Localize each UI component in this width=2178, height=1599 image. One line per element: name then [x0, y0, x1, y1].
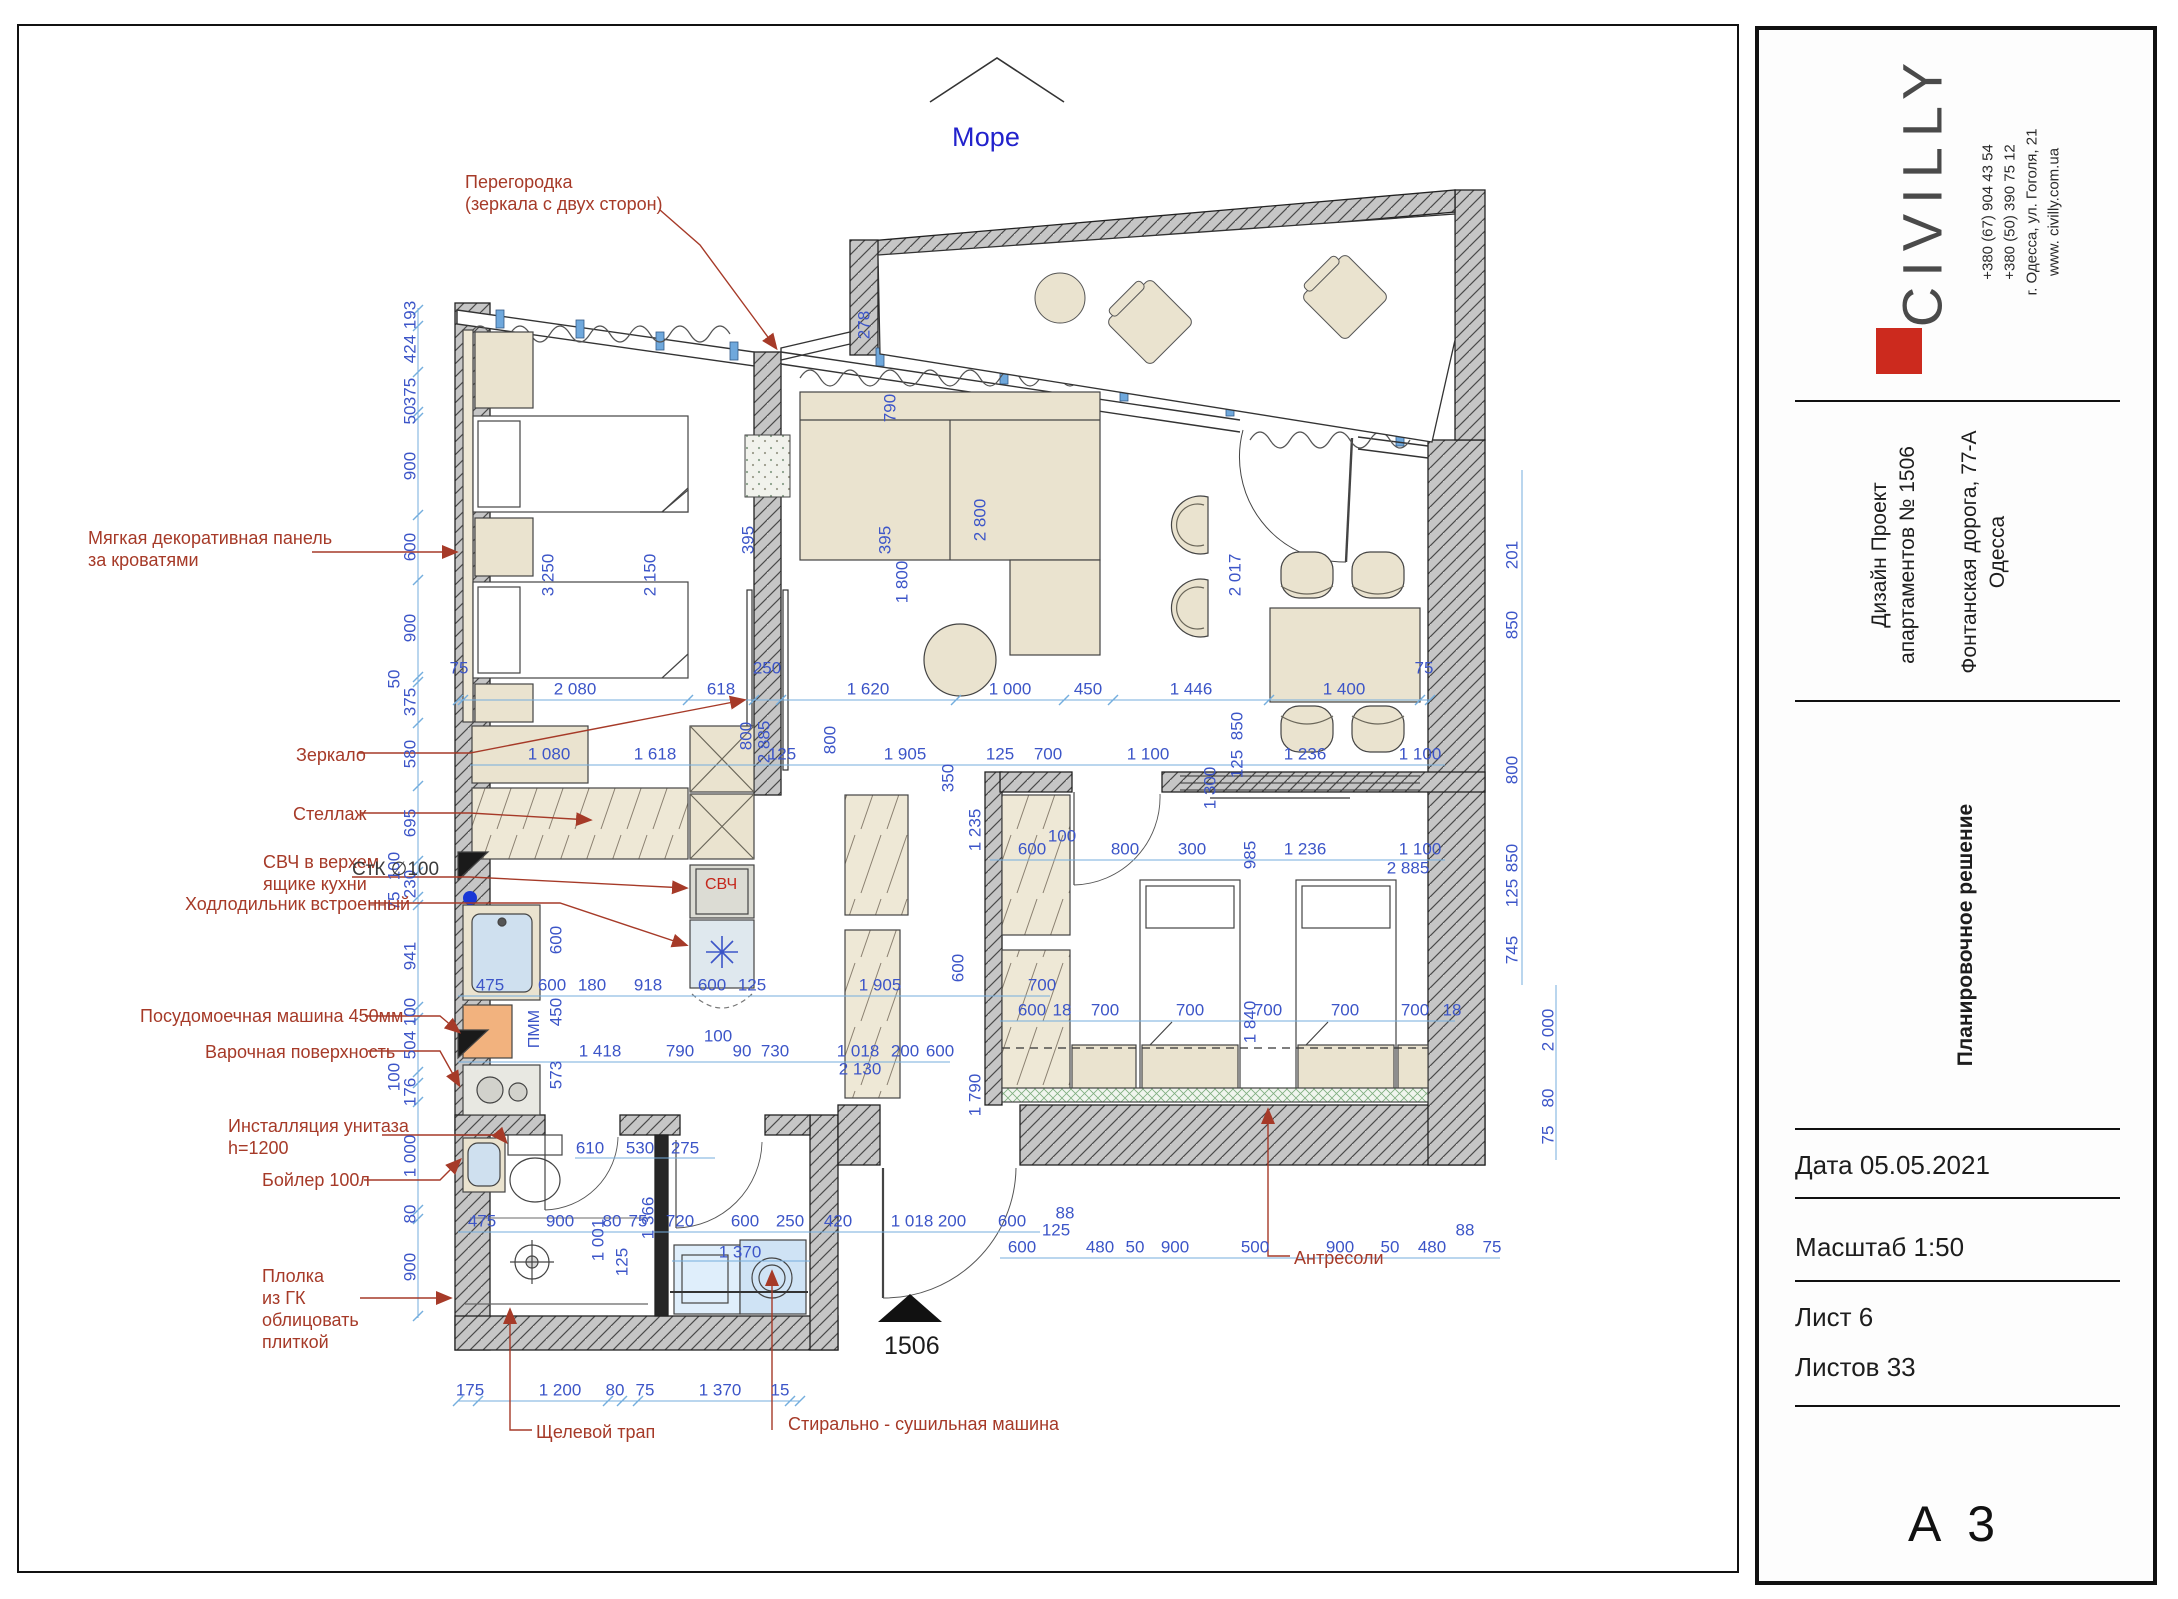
dimension-label: 918	[634, 977, 662, 994]
dimension-label: 2 885	[1387, 860, 1430, 877]
hall-closet-1	[845, 795, 908, 915]
dimension-label: 900	[546, 1213, 574, 1230]
annotation-shelving: Стеллаж	[293, 804, 367, 826]
mirror-strip-right	[783, 590, 788, 770]
sheet-count-row: Листов 33	[1795, 1352, 2125, 1383]
dimension-label: 475	[476, 977, 504, 994]
dimension-label: 18	[1443, 1002, 1462, 1019]
dimension-label: 395	[740, 526, 757, 554]
dimension-label: 1 618	[634, 746, 677, 763]
dimension-label: 125	[768, 746, 796, 763]
dimension-label: 200	[938, 1213, 966, 1230]
balcony-door-leaf	[1346, 438, 1352, 562]
project-title-2: апартаментов № 1506	[1896, 446, 1920, 664]
dimension-label: 80	[402, 1205, 419, 1224]
dimension-label: 1 100	[1127, 746, 1170, 763]
structural-column	[745, 435, 790, 497]
dimension-label: 790	[666, 1043, 694, 1060]
dimension-label: 2 800	[972, 499, 989, 542]
annotation-partition: Перегородка(зеркала с двух сторон)	[465, 172, 663, 216]
dimension-label: 125	[986, 746, 1014, 763]
dimension-label: 1 418	[579, 1043, 622, 1060]
dimension-label: 1 236	[1284, 841, 1327, 858]
tb-divider-6	[1795, 1405, 2120, 1407]
dimension-label: 800	[1111, 841, 1139, 858]
toilet	[508, 1135, 562, 1202]
dimension-label: 800	[822, 726, 839, 754]
dimension-label: 504	[402, 1031, 419, 1059]
tb-divider-4	[1795, 1197, 2120, 1199]
dimension-label: 618	[707, 681, 735, 698]
dimension-label: 3 250	[540, 554, 557, 597]
sheet-number-value: 6	[1859, 1302, 1873, 1332]
wardrobe-lower	[1002, 950, 1070, 1098]
dimension-label: 50	[402, 406, 419, 425]
dimension-label: 985	[1242, 841, 1259, 869]
dimension-label: 1 790	[967, 1074, 984, 1117]
dimension-label: 1 018	[837, 1043, 880, 1060]
dimension-label: 480	[1418, 1239, 1446, 1256]
annotation-antresoli: Антресоли	[1294, 1248, 1384, 1270]
dimension-label: 375	[402, 378, 419, 406]
dimension-label: 90	[733, 1043, 752, 1060]
dimension-label: 180	[578, 977, 606, 994]
wall-right	[1428, 440, 1485, 1165]
dimension-label: 700	[1401, 1002, 1429, 1019]
dimension-label: 600	[926, 1043, 954, 1060]
dimension-label: 900	[402, 1253, 419, 1281]
dimension-label: 250	[753, 660, 781, 677]
dimension-label: 1 200	[539, 1382, 582, 1399]
wall-bedroom2-left	[985, 772, 1002, 1105]
drawing-sheet: { "compass": {"label": "Море"}, "entry_m…	[0, 0, 2178, 1599]
annotation-slot-drain: Щелевой трап	[536, 1422, 655, 1444]
dimension-label: 850	[1504, 611, 1521, 639]
dimension-label: 1 100	[1399, 746, 1442, 763]
dimension-label: 600	[698, 977, 726, 994]
dimension-label: 125	[1504, 879, 1521, 907]
dimension-label: 18	[1053, 1002, 1072, 1019]
dimension-label: 424	[402, 335, 419, 363]
dimension-label: 100	[402, 998, 419, 1026]
annotation-cooktop: Варочная поверхность	[205, 1042, 395, 1064]
dimension-label: 600	[538, 977, 566, 994]
dimension-label: 600	[998, 1213, 1026, 1230]
dimension-label: 300	[1178, 841, 1206, 858]
dimension-label: 1 905	[884, 746, 927, 763]
dimension-label: 730	[761, 1043, 789, 1060]
dimension-label: 600	[1018, 841, 1046, 858]
dimension-label: 1 000	[989, 681, 1032, 698]
shelving-unit	[472, 788, 688, 859]
dimension-label: 600	[548, 926, 565, 954]
dimension-label: 2 000	[1540, 1009, 1557, 1052]
dimension-label: 75	[450, 660, 469, 677]
plan-text-svch: СВЧ	[705, 876, 737, 894]
nightstand-2	[475, 518, 533, 576]
annotation-wc-frame: Инсталляция унитазаh=1200	[228, 1116, 409, 1160]
sheet-count-label: Листов	[1795, 1352, 1879, 1382]
dimension-label: 450	[1074, 681, 1102, 698]
entry	[878, 1168, 1016, 1322]
dimension-label: 530	[626, 1140, 654, 1157]
dimension-label: 75	[636, 1382, 655, 1399]
plan-text-stk: СтК ∅100	[352, 858, 439, 881]
dimension-label: 100	[704, 1028, 732, 1045]
dimension-label: 125	[738, 977, 766, 994]
dimension-label: 200	[891, 1043, 919, 1060]
dimension-label: 1 800	[894, 561, 911, 604]
dimension-label: 475	[468, 1213, 496, 1230]
wall-balcony-right	[1455, 190, 1485, 440]
dimension-label: 395	[877, 526, 894, 554]
dimension-label: 850	[1229, 712, 1246, 740]
sheet-count-value: 33	[1887, 1352, 1916, 1382]
dimension-label: 80	[603, 1213, 622, 1230]
paper-format: А 3	[1908, 1495, 2001, 1553]
wall-bottom-right	[1020, 1105, 1485, 1165]
sea-direction-chevron	[930, 58, 1064, 102]
plan-text-more: Море	[952, 122, 1020, 153]
threshold-strip	[1002, 1088, 1428, 1102]
sofa-chaise	[1010, 560, 1100, 655]
dimension-label: 900	[402, 452, 419, 480]
sofa	[800, 392, 1100, 655]
dimension-label: 350	[940, 764, 957, 792]
dimension-label: 375	[402, 688, 419, 716]
dimension-label: 580	[402, 740, 419, 768]
wall-bottom-bath	[455, 1316, 838, 1350]
dimension-label: 1 100	[1399, 841, 1442, 858]
scale-label: Масштаб	[1795, 1232, 1906, 1262]
dimension-label: 600	[731, 1213, 759, 1230]
dimension-label: 800	[1504, 756, 1521, 784]
dimension-label: 790	[882, 394, 899, 422]
dimension-label: 700	[1028, 977, 1056, 994]
nightstand-1	[475, 332, 533, 408]
dimension-label: 250	[776, 1213, 804, 1230]
tb-divider-3	[1795, 1128, 2120, 1130]
nightstand-3	[475, 684, 533, 722]
dimension-label: 80	[1540, 1089, 1557, 1108]
dimension-label: 900	[1161, 1239, 1189, 1256]
dimension-label: 941	[402, 942, 419, 970]
dimension-label: 15	[771, 1382, 790, 1399]
dimension-label: 75	[1540, 1126, 1557, 1145]
bed-2	[473, 582, 688, 678]
dimension-label: 695	[402, 809, 419, 837]
dimension-label: 480	[1086, 1239, 1114, 1256]
dimension-label: 88	[1056, 1205, 1075, 1222]
dimension-label: 278	[856, 311, 873, 339]
dimension-label: 700	[1331, 1002, 1359, 1019]
dimension-label: 600	[402, 533, 419, 561]
plan-text-pmm: ПММ	[526, 1010, 544, 1048]
tb-divider-2	[1795, 700, 2120, 702]
dimension-label: 201	[1504, 541, 1521, 569]
dimension-label: 700	[1176, 1002, 1204, 1019]
dimension-label: 850	[1504, 844, 1521, 872]
scale-value: 1:50	[1913, 1232, 1964, 1262]
company-website: www. civilly.com.ua	[2046, 148, 2063, 276]
sheet-number-row: Лист 6	[1795, 1302, 2125, 1333]
dimension-label: 80	[606, 1382, 625, 1399]
company-address: г. Одесса, ул. Гоголя, 21	[2024, 129, 2041, 296]
plan-text-entry: 1506	[884, 1332, 940, 1361]
dimension-label: 75	[629, 1213, 648, 1230]
annotation-boiler: Бойлер 100л	[262, 1170, 370, 1192]
dimension-label: 800	[738, 722, 755, 750]
dimension-label: 600	[950, 954, 967, 982]
date-label: Дата	[1795, 1150, 1853, 1180]
dimension-label: 1 235	[967, 809, 984, 852]
annotation-fridge: Ходлодильник встроенный	[185, 894, 410, 916]
dimension-label: 275	[671, 1140, 699, 1157]
dimension-label: 193	[402, 301, 419, 329]
date-value: 05.05.2021	[1860, 1150, 1990, 1180]
dimension-label: 2 017	[1227, 554, 1244, 597]
project-title-1: Дизайн Проект	[1868, 482, 1892, 628]
dimension-label: 573	[548, 1061, 565, 1089]
annotation-soft-panel: Мягкая декоративная панельза кроватями	[88, 528, 332, 572]
dimension-label: 1 400	[1323, 681, 1366, 698]
dimension-label: 600	[1018, 1002, 1046, 1019]
bed-3	[1140, 880, 1240, 1098]
phone-2: +380 (50) 390 75 12	[2002, 144, 2019, 280]
bed-4	[1296, 880, 1396, 1098]
dimension-label: 900	[402, 614, 419, 642]
dimension-label: 176	[402, 1078, 419, 1106]
dimension-label: 1 446	[1170, 681, 1213, 698]
company-logo: CIVILLY	[1890, 53, 1955, 327]
dimension-label: 610	[576, 1140, 604, 1157]
dimension-label: 745	[1504, 936, 1521, 964]
dimension-label: 700	[1034, 746, 1062, 763]
dimension-label: 720	[666, 1213, 694, 1230]
dimension-label: 100	[1048, 828, 1076, 845]
dimension-label: 700	[1091, 1002, 1119, 1019]
wardrobe-upper	[1002, 795, 1070, 935]
dimension-label: 75	[1483, 1239, 1502, 1256]
dimension-label: 50	[386, 670, 403, 689]
dimension-label: 125	[1042, 1222, 1070, 1239]
dimension-label: 88	[1456, 1222, 1475, 1239]
dimension-label: 420	[824, 1213, 852, 1230]
phone-1: +380 (67) 904 43 54	[1980, 144, 1997, 280]
dimension-label: 1 840	[1242, 1001, 1259, 1044]
dimension-label: 450	[548, 998, 565, 1026]
project-address-2: Одесса	[1986, 516, 2010, 589]
tb-divider-1	[1795, 400, 2120, 402]
dimension-label: 125	[614, 1248, 631, 1276]
project-address-1: Фонтанская дорога, 77-А	[1958, 430, 1982, 673]
date-row: Дата 05.05.2021	[1795, 1150, 2125, 1181]
dimension-label: 175	[456, 1382, 484, 1399]
annotation-gk-shelf: Плолкаиз ГКоблицоватьплиткой	[262, 1266, 359, 1354]
dimension-label: 600	[1008, 1239, 1036, 1256]
dimension-label: 50	[1126, 1239, 1145, 1256]
dimension-label: 500	[1241, 1239, 1269, 1256]
dimension-label: 1 620	[847, 681, 890, 698]
annotation-dishwasher: Посудомоечная машина 450мм	[140, 1006, 403, 1028]
balcony-door-swing	[1239, 430, 1346, 562]
dimension-label: 1 080	[528, 746, 571, 763]
sheet-number-label: Лист	[1795, 1302, 1852, 1332]
dimension-label: 1 018	[891, 1213, 934, 1230]
annotation-washer-dryer: Стирально - сушильная машина	[788, 1414, 1059, 1436]
dimension-label: 75	[1415, 660, 1434, 677]
dimension-label: 1 905	[859, 977, 902, 994]
bed-1	[473, 416, 688, 512]
dimension-label: 1 236	[1284, 746, 1327, 763]
tb-divider-5	[1795, 1280, 2120, 1282]
sheet-title: Планировочное решение	[1954, 804, 1978, 1066]
dimension-label: 1 370	[699, 1382, 742, 1399]
balcony-table	[1035, 273, 1085, 323]
entry-door-swing	[883, 1168, 1016, 1298]
dimension-label: 1 370	[719, 1244, 762, 1261]
coffee-table	[924, 624, 996, 696]
dimension-label: 1 300	[1202, 767, 1219, 810]
dimension-label: 125	[1229, 750, 1246, 778]
dimension-label: 2 130	[839, 1061, 882, 1078]
dimension-label: 2 150	[642, 554, 659, 597]
dimension-label: 2 080	[554, 681, 597, 698]
scale-row: Масштаб 1:50	[1795, 1232, 2125, 1263]
annotation-mirror: Зеркало	[296, 745, 366, 767]
